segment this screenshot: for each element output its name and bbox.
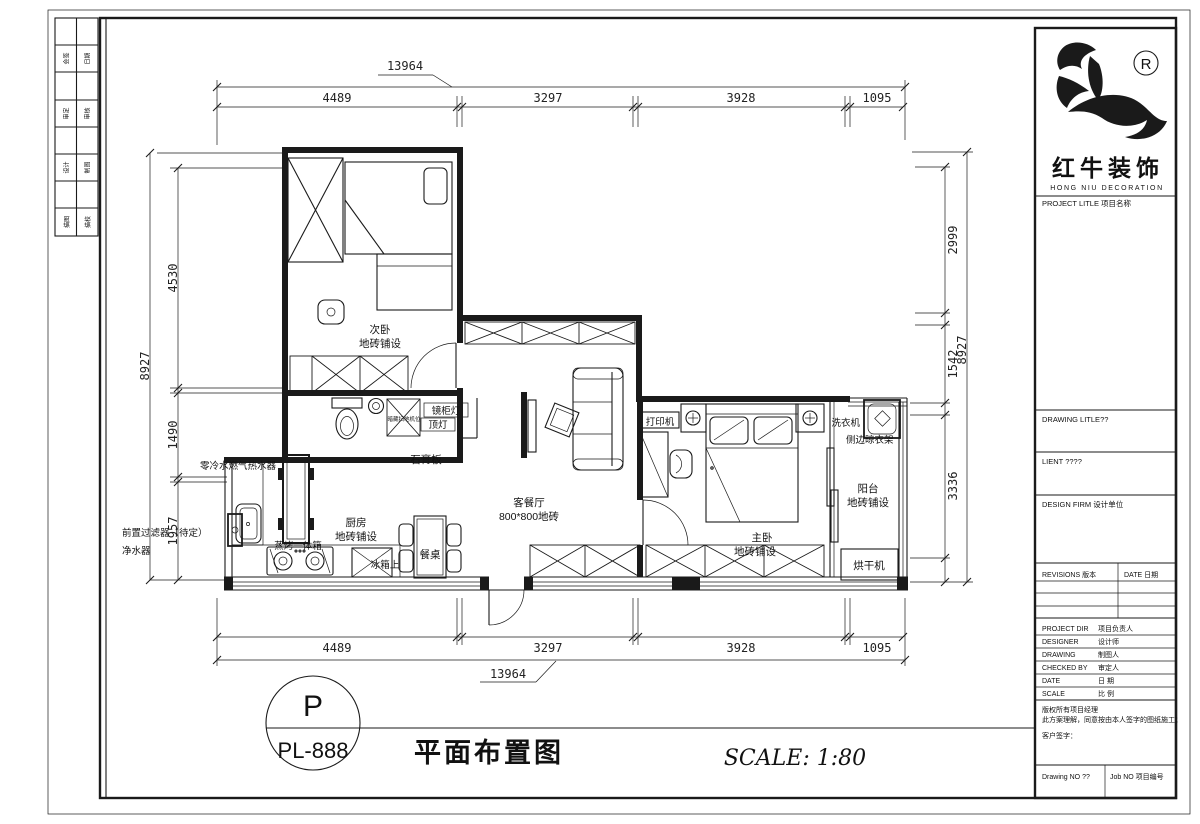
label-side-rack: 侧边晾衣架: [846, 434, 894, 446]
dim-right-1: 2999: [946, 226, 960, 255]
room-sublabel-living: 800*800地砖: [499, 510, 560, 523]
revisions-label: REVISIONS 版本: [1042, 570, 1096, 579]
drawing-title: 平面布置图: [414, 738, 564, 768]
registered-mark: R: [1141, 56, 1152, 73]
tv: [528, 400, 536, 452]
double-bed: [706, 404, 798, 522]
design-firm-label: DESIGN FIRM 设计单位: [1042, 499, 1124, 509]
label-fridge: 冰箱上: [371, 559, 400, 571]
dim-right-3: 3336: [946, 472, 960, 501]
title-block: R 红牛装饰 HONG NIU DECORATION PROJECT LITLE…: [1035, 28, 1182, 798]
strip-cell: 制图: [84, 161, 92, 173]
room-sublabel-bed2: 地砖铺设: [359, 337, 401, 350]
toilet: [336, 409, 358, 439]
bed: [345, 162, 452, 254]
edge-strip: 会签 日期 审定 审核 设计 制图 描图 描校: [55, 18, 98, 236]
strip-cell: 审核: [84, 107, 92, 119]
row-zh: 日 期: [1098, 677, 1114, 685]
room-sublabel-master: 地砖铺设: [734, 545, 776, 558]
client-label: LIENT ????: [1042, 457, 1082, 466]
floor-plan-canvas: 会签 日期 审定 审核 设计 制图 描图 描校 R 红牛装饰 HONG NIU …: [0, 0, 1200, 824]
desk-chair: [670, 450, 692, 478]
drawing-no-label: Drawing NO ??: [1042, 774, 1090, 781]
toilet-tank: [332, 398, 362, 408]
chair: [399, 550, 413, 572]
room-sublabel-balcony: 地砖铺设: [847, 496, 889, 509]
row-zh: 比 例: [1098, 689, 1114, 698]
drawing-title-label: DRAWING LITLE??: [1042, 415, 1108, 424]
coffee-table: [545, 403, 579, 437]
room-label-master: 主卧: [752, 531, 773, 544]
dim-bottom-1: 4489: [323, 641, 352, 655]
door-bed2: [411, 343, 456, 388]
row-en: PROJECT DIR: [1042, 626, 1089, 633]
label-mirror-light: 镜柜灯: [432, 405, 461, 417]
revisions-date-label: DATE 日期: [1124, 571, 1158, 579]
label-washer: 洗衣机: [831, 417, 860, 429]
brand-name: 红牛装饰: [1052, 155, 1164, 181]
walls: [224, 147, 908, 590]
bed2-furniture: [288, 158, 452, 324]
door-entry: [489, 590, 524, 625]
chair: [399, 524, 413, 546]
job-no-label: Job NO 项目编号: [1110, 772, 1164, 781]
brand-name-en: HONG NIU DECORATION: [1050, 185, 1164, 192]
row-en: DATE: [1042, 678, 1060, 685]
chair: [447, 524, 461, 546]
sofa: [573, 368, 623, 470]
row-en: SCALE: [1042, 691, 1065, 698]
label-ceiling-light: 顶灯: [428, 420, 448, 431]
room-label-bed2: 次卧: [370, 323, 391, 336]
dim-top-4: 1095: [863, 91, 892, 105]
room-label-balcony: 阳台: [858, 482, 879, 495]
dim-top-2: 3297: [534, 91, 563, 105]
sheet-number: PL-888: [278, 738, 349, 763]
strip-cell: 描图: [63, 216, 71, 228]
dim-bottom-4: 1095: [863, 641, 892, 655]
door-master: [643, 500, 688, 545]
strip-cell: 日期: [84, 52, 92, 64]
room-sublabel-kitchen: 地砖铺设: [335, 530, 377, 543]
drawing-scale: SCALE: 1:80: [724, 746, 866, 771]
living-furniture: [528, 368, 623, 470]
row-en: DESIGNER: [1042, 639, 1079, 646]
water-heater: [278, 455, 314, 543]
dim-top-overall: 13964: [387, 59, 423, 73]
label-steam-oven: 蒸烤一体箱: [274, 540, 322, 552]
row-zh: 项目负责人: [1098, 624, 1133, 633]
row-en: CHECKED BY: [1042, 665, 1088, 672]
strip-cell: 会签: [63, 52, 71, 64]
dim-top-3: 3928: [727, 91, 756, 105]
project-title-label: PROJECT LITLE 项目名称: [1042, 198, 1132, 208]
dim-bottom-overall: 13964: [490, 667, 526, 681]
label-purifier: 净水器: [122, 545, 151, 557]
dim-bottom-2: 3297: [534, 641, 563, 655]
label-dining-table: 餐桌: [420, 548, 441, 561]
doors: [411, 343, 688, 625]
label-gypsum-board: 石膏板: [410, 453, 442, 466]
sheet-frame: [48, 10, 1190, 814]
dimensions-bottom: 4489 3297 3928 1095 13964: [213, 598, 909, 682]
room-label-living: 客餐厅: [513, 496, 545, 509]
dim-right-overall: 8927: [955, 336, 969, 365]
room-label-kitchen: 厨房: [346, 516, 367, 529]
drawing-sheet: 会签 日期 审定 审核 设计 制图 描图 描校 R 红牛装饰 HONG NIU …: [0, 0, 1200, 824]
strip-cell: 设计: [63, 161, 71, 173]
bathroom-fixtures: [332, 398, 384, 439]
row-en: DRAWING: [1042, 652, 1076, 659]
row-zh: 审定人: [1098, 663, 1119, 672]
dimensions-top: 13964 4489 3297 3928 1095: [213, 59, 909, 145]
label-printer: 打印机: [646, 416, 675, 428]
sheet-letter: P: [303, 690, 323, 723]
chair: [447, 550, 461, 572]
label-water-heater: 零冷水燃气热水器: [200, 460, 277, 472]
label-dryer: 烘干机: [853, 559, 885, 572]
client-signature-label: 客户签字：: [1042, 731, 1077, 740]
row-zh: 制图人: [1098, 650, 1119, 659]
dimensions-right: 2999 1542 3336 8927: [910, 148, 973, 586]
desk-chair: [318, 300, 344, 324]
dim-left-1: 4530: [166, 264, 180, 293]
strip-cell: 描校: [84, 216, 92, 228]
dim-left-2: 1490: [166, 421, 180, 450]
sheet-title-bar: P PL-888 平面布置图 SCALE: 1:80: [266, 676, 1034, 771]
label-prefilter: 前置过滤器（待定）: [122, 527, 208, 539]
copyright-note: 版权所有项目经理: [1042, 705, 1098, 714]
dining-set: [399, 516, 461, 578]
dim-top-1: 4489: [323, 91, 352, 105]
dim-left-overall: 8927: [138, 352, 152, 381]
kitchen-fixtures: [228, 455, 400, 577]
agreement-note: 此方案理解，同意按由本人签字的图纸施工；: [1042, 715, 1182, 724]
company-logo: R 红牛装饰 HONG NIU DECORATION: [1050, 43, 1167, 192]
strip-cell: 审定: [63, 107, 71, 119]
label-robot-vacuum: 暗藏扫地机位: [387, 415, 421, 423]
dining-table: [414, 516, 446, 578]
basin: [369, 399, 384, 414]
dim-bottom-3: 3928: [727, 641, 756, 655]
row-zh: 设计师: [1098, 637, 1119, 646]
